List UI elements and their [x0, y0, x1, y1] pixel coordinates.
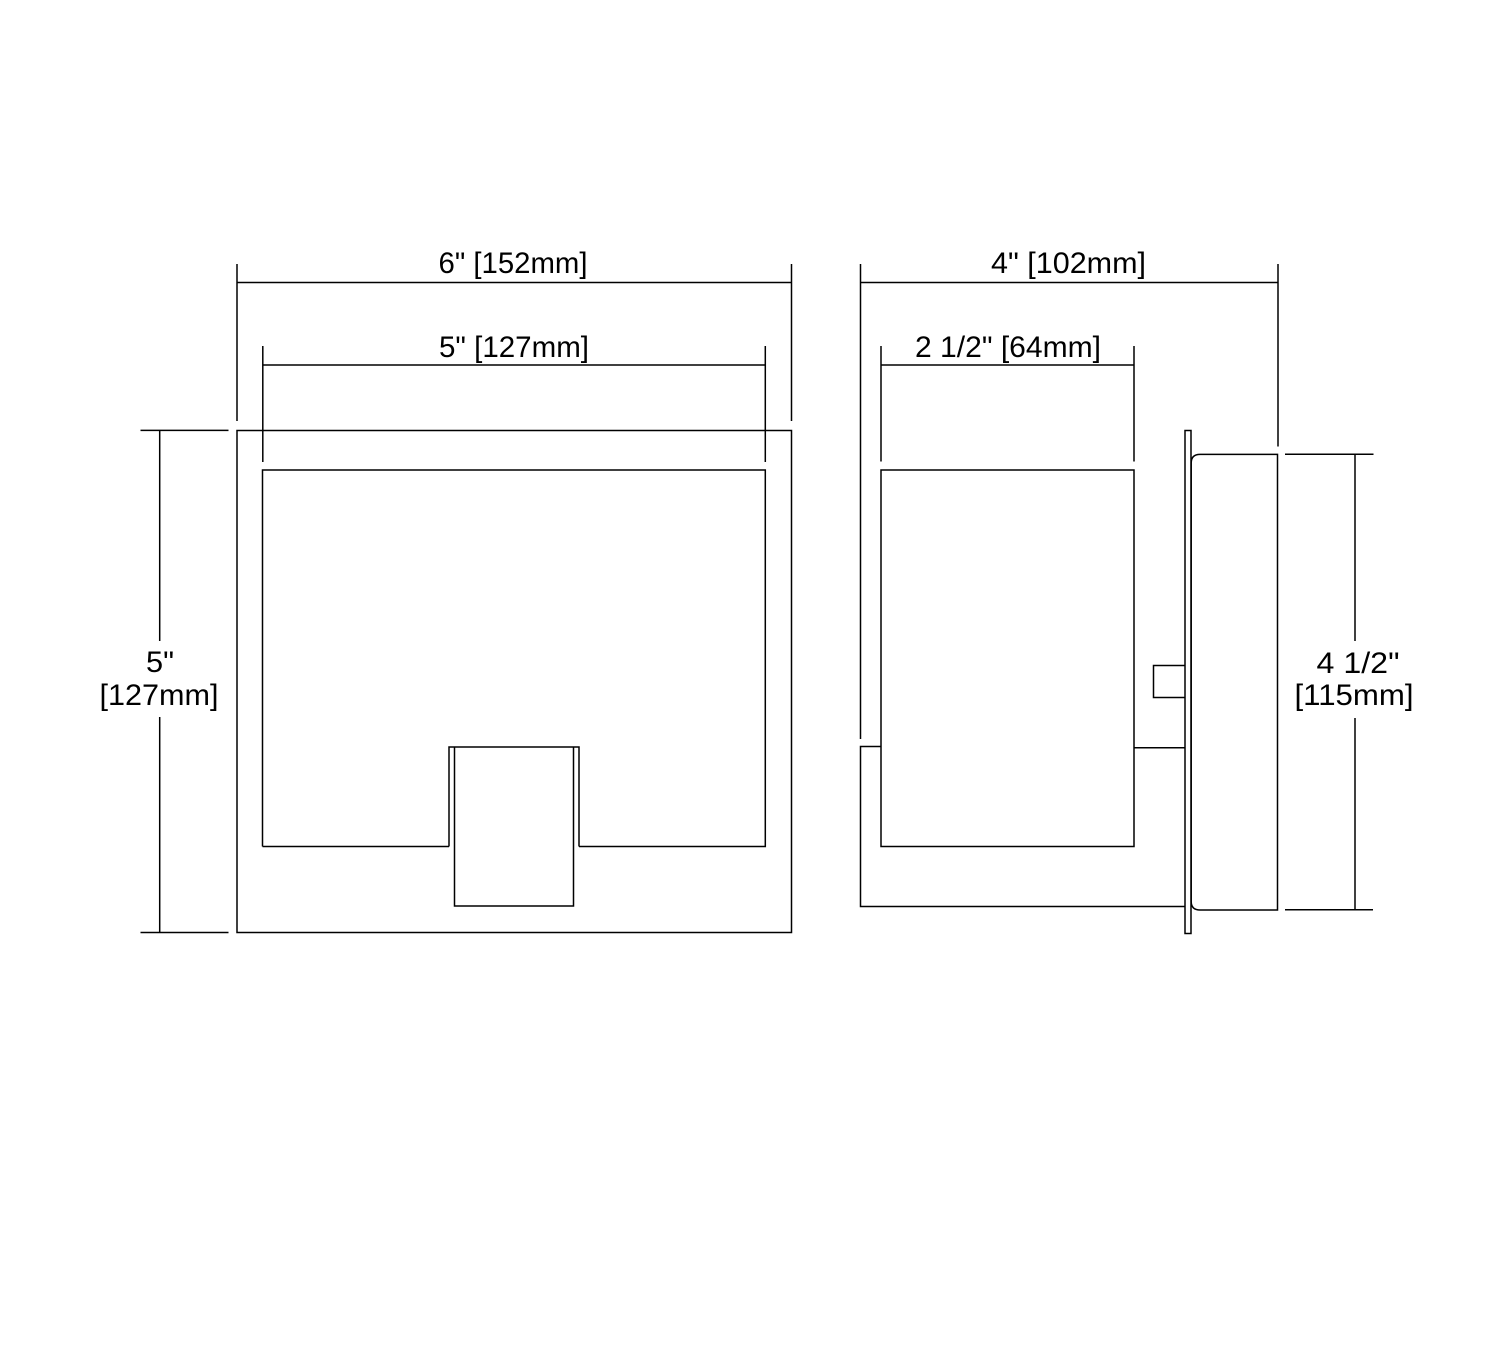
svg-text:2 1/2" [64mm]: 2 1/2" [64mm]	[915, 331, 1101, 364]
svg-text:[115mm]: [115mm]	[1295, 679, 1414, 712]
svg-text:5" [127mm]: 5" [127mm]	[439, 331, 589, 364]
svg-text:4" [102mm]: 4" [102mm]	[991, 247, 1146, 280]
svg-text:4 1/2": 4 1/2"	[1317, 647, 1400, 680]
svg-text:[127mm]: [127mm]	[100, 679, 219, 712]
svg-text:5": 5"	[146, 646, 174, 679]
svg-text:6" [152mm]: 6" [152mm]	[439, 247, 588, 280]
